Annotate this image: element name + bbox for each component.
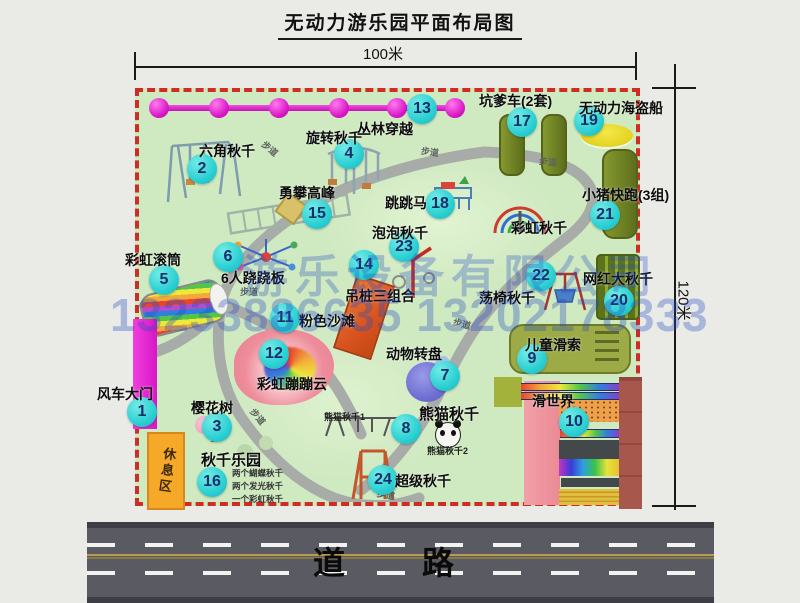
badge-24: 24 [368,465,398,495]
label-rainbow-roller: 彩虹滚筒 [125,250,181,270]
note-line: 两个发光秋千 [232,480,283,493]
slide-world-dark-band-icon [559,440,619,459]
jungle-crossing-node-icon [329,98,349,118]
jungle-crossing-node-icon [387,98,407,118]
slide-world-gradient-slide-icon [559,459,619,476]
label-rotating-swing: 旋转秋千 [306,128,362,148]
jungle-crossing-node-icon [269,98,289,118]
badge-17: 17 [507,107,537,137]
label-rainbow-cloud: 彩虹蹦蹦云 [257,374,327,394]
jungle-crossing-node-icon [209,98,229,118]
badge-10: 10 [559,407,589,437]
label-kengdie-car: 坑爹车(2套) [479,91,552,111]
slide-world-side-wall-icon [619,377,642,509]
label-pink-beach: 粉色沙滩 [299,311,355,331]
note-line: 两个蝴蝶秋千 [232,467,283,480]
label-pirate-ship: 无动力海盗船 [579,98,663,118]
label-panda-swing-1: 熊猫秋千1 [324,410,365,423]
dimension-height-label: 120米 [674,280,695,320]
slide-world-rainbow-slide-icon [521,383,619,391]
dimension-tick-top [652,87,696,89]
jungle-crossing-node-icon [149,98,169,118]
badge-12: 12 [259,339,289,369]
badge-16: 16 [197,467,227,497]
swing-paradise-notes: 两个蝴蝶秋千 两个发光秋千 一个彩虹秋千 [232,467,283,505]
label-super-swing: 超级秋千 [395,471,451,491]
badge-8: 8 [391,414,421,444]
label-big-swing: 网红大秋千 [583,269,653,289]
label-panda-swing-2: 熊猫秋千2 [427,444,468,457]
note-line: 一个彩虹秋千 [232,493,283,506]
road: 道 路 [87,522,714,603]
badge-15: 15 [302,199,332,229]
label-windmill-gate: 风车大门 [97,384,153,404]
dimension-line-horizontal [135,66,637,68]
slide-world-dark-band-icon [561,478,619,487]
dimension-width-label: 100米 [363,43,403,64]
badge-22: 22 [526,261,556,291]
dimension-tick-bottom [652,505,696,507]
label-slide-world: 滑世界 [532,391,574,411]
label-kids-zipline: 儿童滑索 [525,335,581,355]
page-title: 无动力游乐园平面布局图 [0,8,800,40]
label-hanging-piles: 吊桩三组合 [345,286,415,306]
dimension-tick-right [635,52,637,80]
label-climbing-peak: 勇攀高峰 [279,183,335,203]
rest-area-label: 休息区 [153,446,178,496]
badge-20: 20 [604,286,634,316]
badge-14: 14 [349,250,379,280]
label-swing-chair: 荡椅秋千 [479,288,535,308]
slide-world-platform-icon [494,377,522,407]
rest-area: 休息区 [147,432,185,510]
label-piggy-run: 小猪快跑(3组) [582,185,669,205]
badge-18: 18 [425,189,455,219]
label-animal-turntable: 动物转盘 [386,344,442,364]
park-map: 步道 步道 步道 步道 步道 步道 步道 [135,88,640,506]
path-label: 步道 [538,154,557,169]
badge-7: 7 [430,361,460,391]
label-jumping-horse: 跳跳马 [385,193,427,213]
road-label: 道 路 [87,538,714,584]
dimension-tick-left [134,52,136,80]
label-panda-swing: 熊猫秋千 [419,403,479,424]
label-jungle-crossing: 丛林穿越 [357,119,413,139]
small-tree-icon [259,436,273,450]
label-hexagon-swing: 六角秋千 [199,141,255,161]
jungle-crossing-node-icon [445,98,465,118]
label-six-seesaw: 6人跷跷板 [221,268,285,288]
label-bubble-swing: 泡泡秋千 [372,223,428,243]
slide-world-wave-slide-icon [559,489,619,505]
label-cherry-tree: 樱花树 [191,398,233,418]
badge-11: 11 [270,303,300,333]
page-title-text: 无动力游乐园平面布局图 [278,8,521,40]
label-rainbow-swing: 彩虹秋千 [511,218,567,238]
path-label: 步道 [420,144,440,159]
